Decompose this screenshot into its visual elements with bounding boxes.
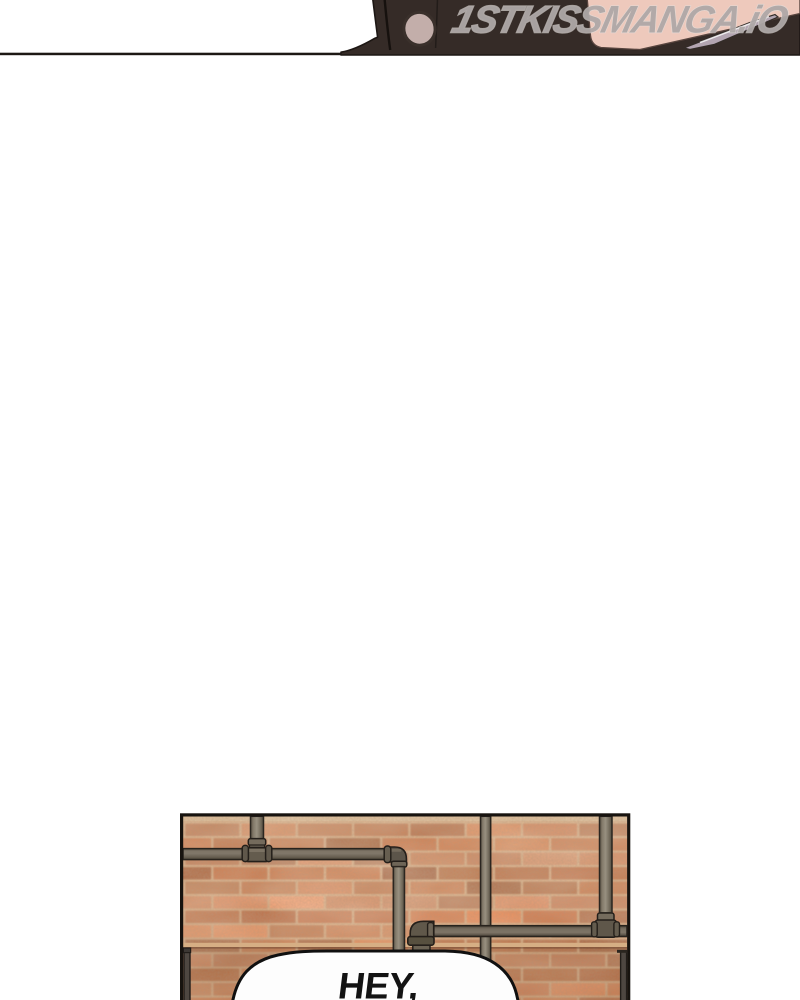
- svg-text:1STKISSMANGA.iO: 1STKISSMANGA.iO: [448, 0, 792, 41]
- svg-text:HEY,: HEY,: [336, 965, 421, 1000]
